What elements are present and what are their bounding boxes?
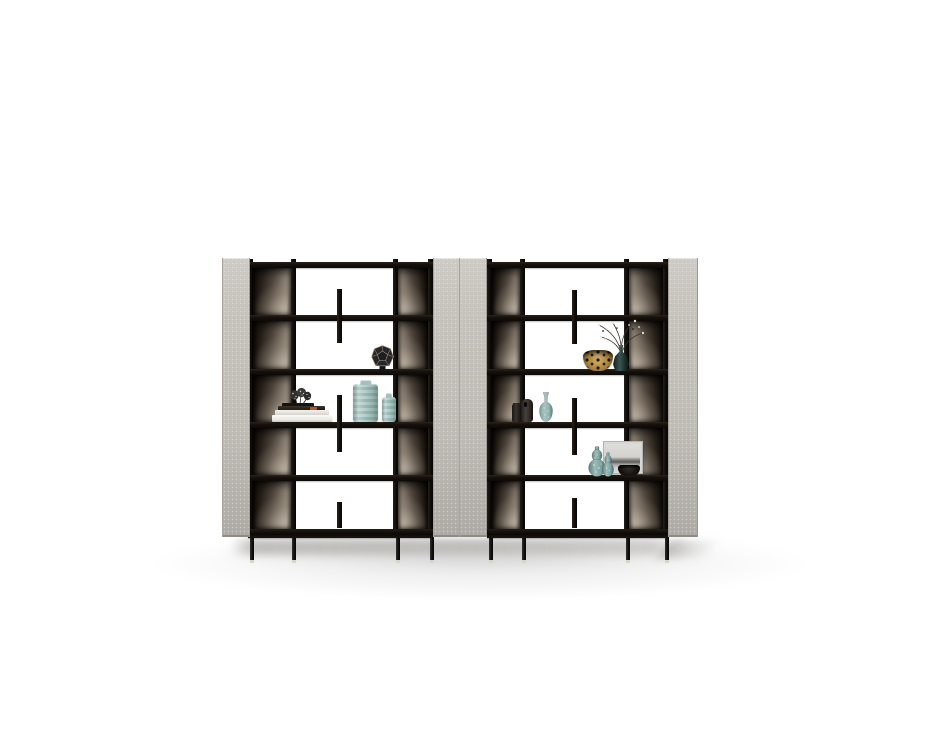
shelf — [487, 369, 668, 375]
bronze-back-cell — [398, 481, 428, 529]
vertical-divider — [572, 398, 577, 455]
bronze-back-cell — [629, 375, 663, 422]
leg — [396, 535, 400, 563]
leg — [430, 535, 434, 563]
leg — [292, 535, 296, 563]
dried-branches — [591, 319, 647, 353]
shelf — [248, 475, 433, 481]
shelf — [248, 369, 433, 375]
bronze-back-cell — [253, 321, 291, 369]
vertical-divider — [337, 289, 342, 343]
bronze-back-cell — [398, 375, 428, 422]
shelf — [487, 422, 668, 428]
frame-post — [624, 259, 629, 533]
side-panel-right — [433, 258, 460, 537]
genie-bottle-body — [540, 393, 553, 422]
frame-post — [487, 259, 492, 533]
genie-bottle-vase — [539, 392, 553, 422]
ribbed-vase-large — [353, 384, 378, 422]
bronze-back-cell — [253, 268, 291, 315]
vertical-divider — [337, 502, 342, 528]
figurine-bloom — [304, 392, 311, 400]
bronze-back-cell — [629, 481, 663, 529]
genie-bottle-graphic — [539, 392, 553, 422]
vertical-divider — [572, 498, 577, 528]
bronze-back-cell — [398, 268, 428, 315]
leg — [522, 535, 526, 563]
dark-vase-large — [521, 399, 533, 422]
bronze-back-cell — [253, 428, 291, 475]
shelf — [487, 475, 668, 481]
spiky-figurine — [288, 387, 312, 405]
vertical-divider — [572, 290, 577, 344]
book-stack — [272, 403, 332, 422]
bronze-back-cell — [492, 268, 520, 315]
ribbed-vase-small — [382, 397, 396, 422]
gourd-vase-graphic — [602, 452, 614, 477]
shelf-base — [487, 529, 668, 538]
bookshelf-unit-right — [459, 247, 697, 567]
faceted-vase-graphic — [371, 345, 394, 371]
vertical-divider — [337, 395, 342, 452]
bronze-back-cell — [492, 321, 520, 369]
faceted-vase-foot — [380, 366, 386, 371]
bronze-back-cell — [492, 481, 520, 529]
figurine-base — [296, 403, 305, 405]
spiky-figurine-graphic — [288, 387, 312, 405]
side-panel-left — [222, 258, 250, 537]
gourd-lower-bulb — [602, 463, 613, 477]
bronze-back-cell — [398, 428, 428, 475]
book — [272, 415, 332, 422]
frame-post — [520, 259, 525, 533]
dark-vase-small — [512, 403, 521, 422]
shelf — [248, 262, 433, 268]
bronze-back-cell — [253, 481, 291, 529]
faceted-vase — [371, 345, 394, 371]
leg — [489, 535, 493, 563]
bronze-back-cell — [492, 428, 520, 475]
leg — [665, 535, 669, 563]
leg — [250, 535, 254, 563]
shelf-base — [248, 529, 433, 538]
bronze-back-cell — [398, 321, 428, 369]
product-photo-canvas: { "scene": { "type": "furniture-product-… — [0, 0, 950, 733]
bronze-back-cell — [629, 268, 663, 315]
dried-branches-graphic — [591, 319, 647, 353]
branch-blossoms — [598, 320, 644, 340]
leg — [626, 535, 630, 563]
frame-post — [393, 259, 398, 533]
gourd-vase-small — [602, 452, 614, 477]
bookshelf-unit-left — [222, 247, 458, 567]
side-panel-right — [668, 258, 698, 537]
shelf — [487, 262, 668, 268]
side-panel-left — [459, 258, 487, 537]
leopard-bowl — [583, 350, 613, 371]
